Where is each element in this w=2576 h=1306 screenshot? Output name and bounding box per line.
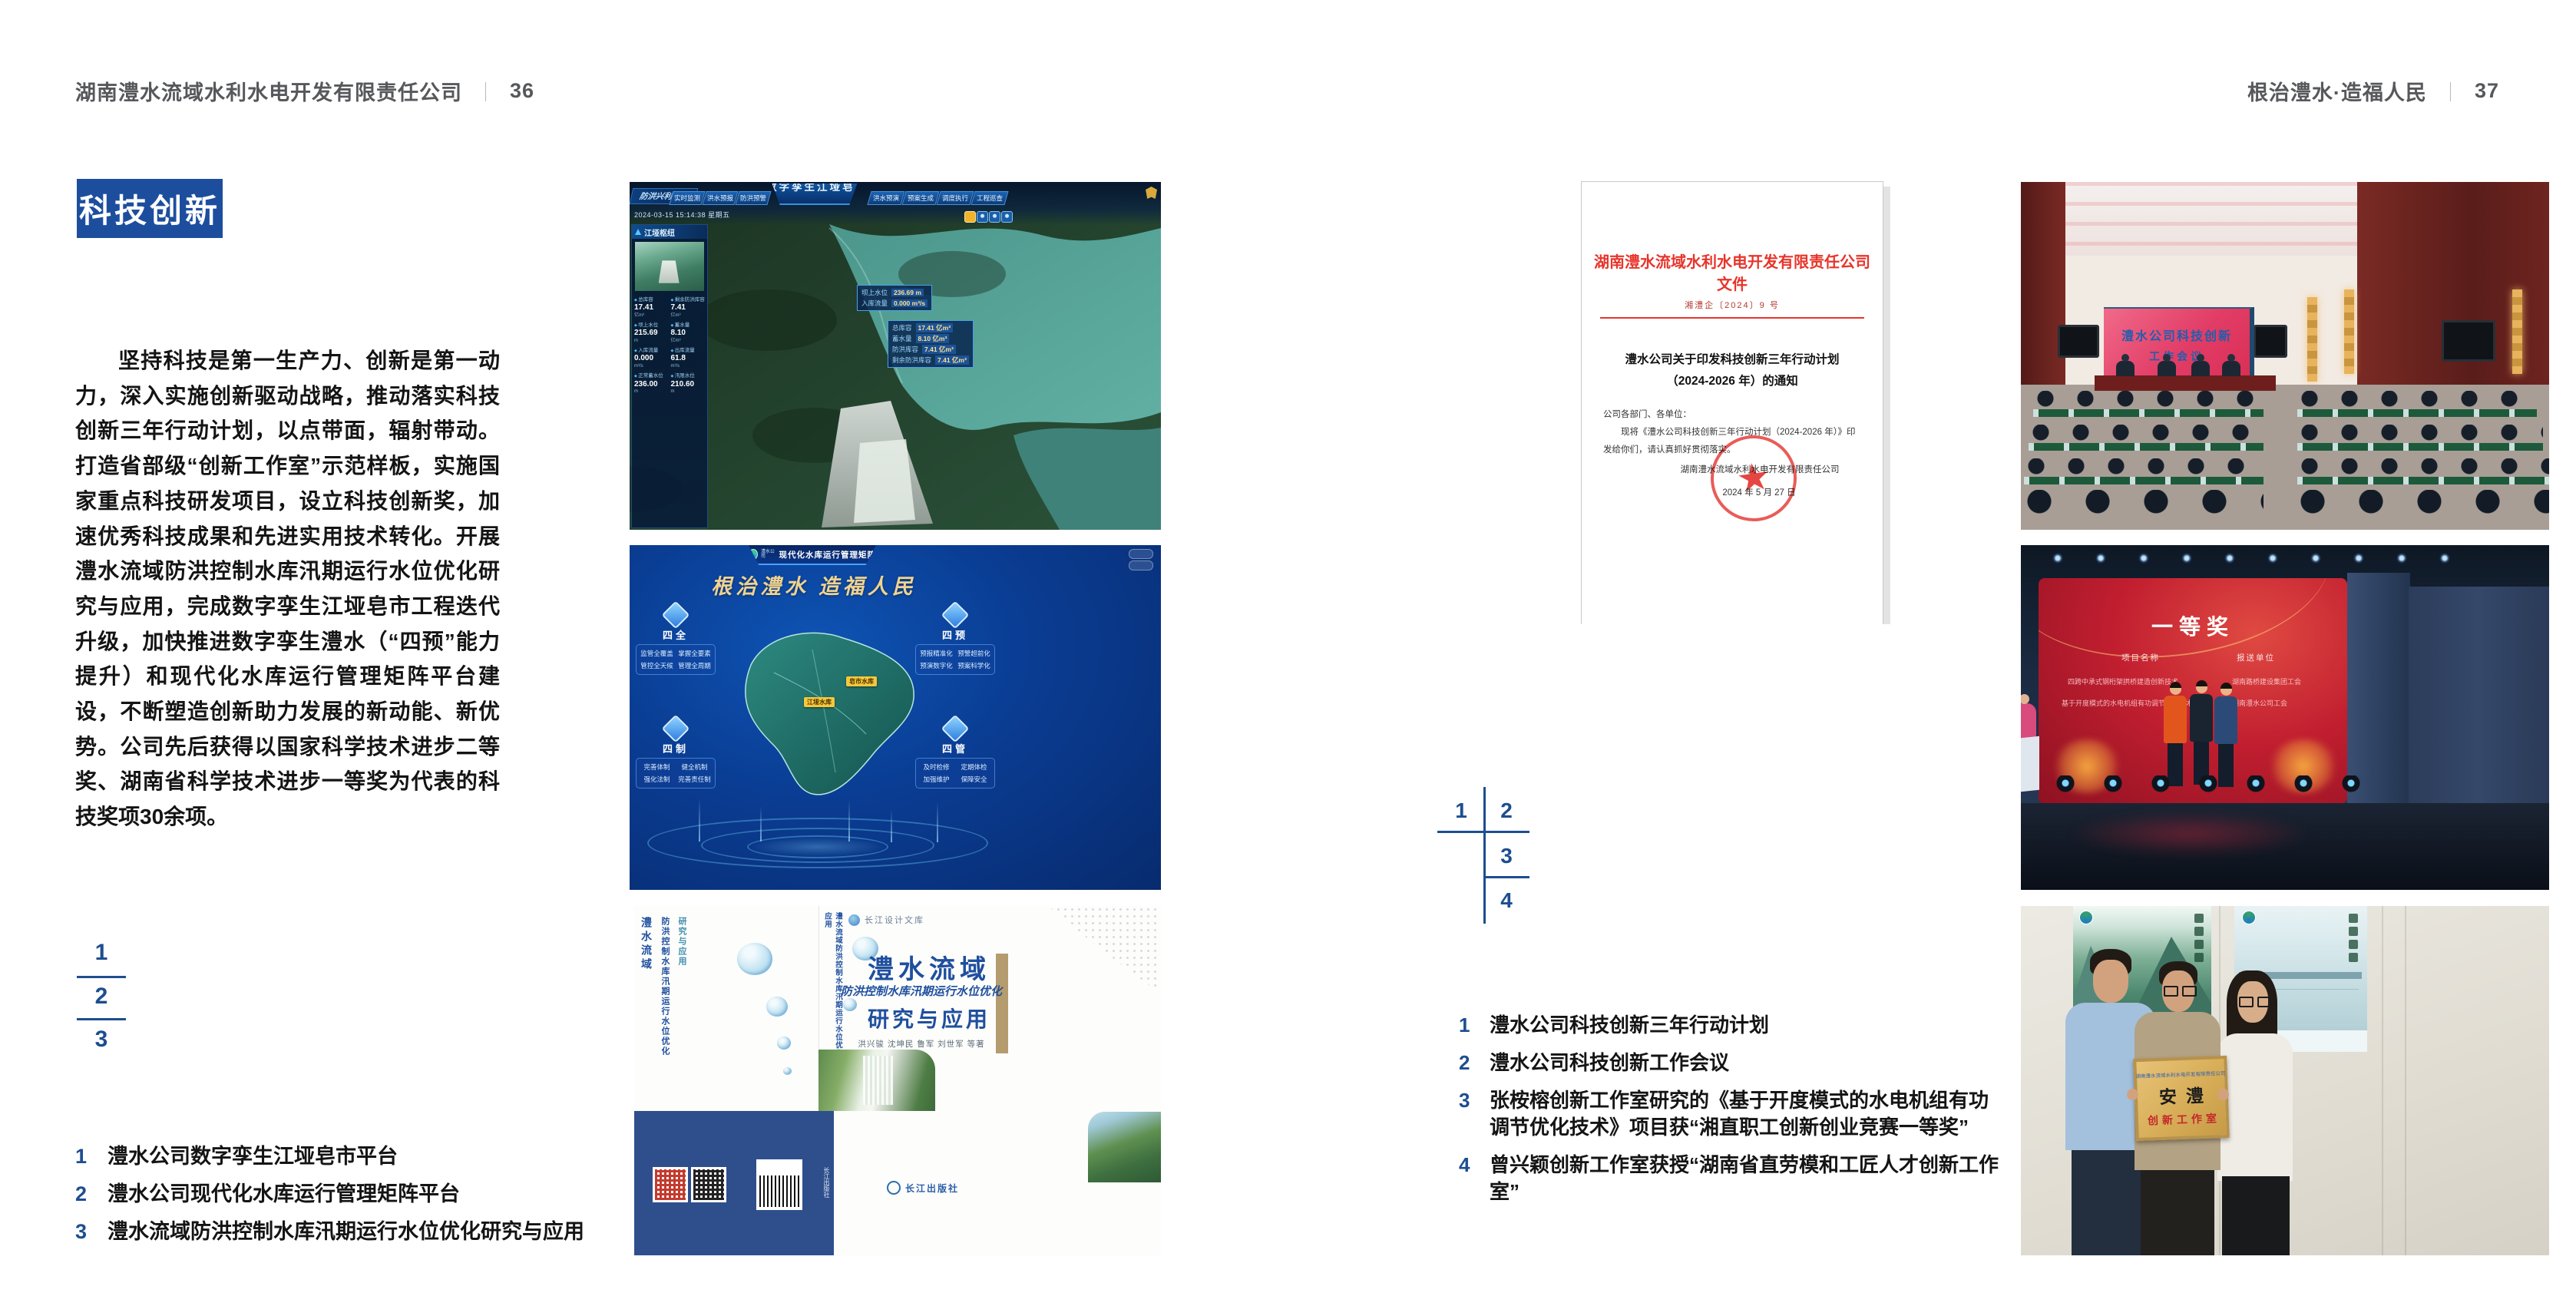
right-figure-index-3: 3 [1494, 844, 1519, 868]
panelist-silhouette [2116, 361, 2135, 376]
stat-cell: 汛限水位210.60m [671, 373, 706, 395]
plaque-org-line: 湖南澧水流域水利水电开发有限责任公司 [2135, 1068, 2225, 1079]
figure-award-stage-photo: 一等奖 项目名称 报送单位 四跨中承式钢桁架拱桥建造创新技术 湖南路桥建设集团工… [2021, 545, 2549, 890]
tab-flood-warning: 防洪预警 [735, 191, 771, 205]
caption-text: 澧水公司数字孪生江垭皂市平台 [107, 1143, 597, 1170]
face [2093, 960, 2128, 1003]
presenter-suit [2188, 682, 2214, 785]
pants [2141, 1170, 2214, 1255]
caption-number: 1 [1459, 1012, 1474, 1039]
water-drop [737, 943, 772, 975]
side-screen [2442, 320, 2495, 362]
glasses-icon [2164, 986, 2197, 997]
stage-spotlights [2052, 551, 2466, 565]
audience-row [2297, 425, 2543, 451]
caption-number: 3 [1459, 1087, 1474, 1141]
right-figure-captions: 1 澧水公司科技创新三年行动计划 2 澧水公司科技创新工作会议 3 张桉榕创新工… [1459, 1012, 2002, 1205]
water-level-tooltip: 坝上水位236.69 m 入库流量0.000 m³/s [857, 285, 932, 311]
water-drop [777, 1037, 791, 1050]
slogan-text: 根治澧水·造福人民 [2247, 76, 2427, 106]
map-label-zaoshi: 皂市水库 [846, 676, 877, 686]
audience-row-foreground [2294, 490, 2549, 530]
group-icon [662, 601, 690, 630]
hand [2127, 1089, 2138, 1100]
dam-spillway-photo [818, 1050, 935, 1111]
panel-header-icon [635, 229, 641, 235]
audience-row [2297, 458, 2549, 484]
meeting-left-wall [2021, 182, 2065, 412]
figure-management-matrix: 澧水公司 现代化水库运行管理矩阵 根治澧水 造福人民 皂市水库 江垭水库 四全 … [630, 545, 1161, 890]
matrix-slogan: 根治澧水 造福人民 [676, 570, 952, 600]
alert-pill [1129, 560, 1153, 570]
left-figure-index-1: 1 [77, 941, 126, 964]
dashboard-left-panel: 江垭枢纽 总库容17.41亿m³ 剩余防洪库容7.41亿m³ 坝上水位215.6… [631, 224, 708, 528]
group-icon [941, 715, 970, 743]
stage-light-fixtures [2042, 775, 2380, 803]
page-number-right: 37 [2475, 79, 2499, 103]
tab-flood-forecast: 洪水预报 [702, 191, 738, 205]
map-tool-user-icon [964, 211, 976, 223]
group-icon [941, 601, 970, 630]
stat-cell: 出库流量61.8m³/s [671, 348, 706, 369]
barcode [756, 1159, 802, 1210]
host-podium [2021, 736, 2039, 792]
index-divider [77, 976, 126, 978]
figure-official-document: 湖南澧水流域水利水电开发有限责任公司文件 湘澧企〔2024〕9 号 澧水公司关于… [1576, 181, 1904, 624]
caption-number: 2 [1459, 1050, 1474, 1076]
panel-header: 江垭枢纽 [632, 225, 707, 239]
caption-number: 1 [75, 1143, 91, 1170]
document-title: 澧水公司关于印发科技创新三年行动计划 （2024-2026 年）的通知 [1597, 349, 1867, 392]
wall-seam [2405, 906, 2406, 1255]
tab-plan-generation: 预案生成 [901, 191, 939, 205]
water-drop [766, 997, 788, 1017]
light-pillar [760, 806, 762, 841]
wall-seam [2382, 906, 2383, 1255]
award-title: 一等奖 [2039, 610, 2347, 641]
plaque-label: 创新工作室 [2144, 1110, 2221, 1128]
tab-realtime-monitor: 实时监测 [669, 191, 705, 205]
figure-meeting-photo: 澧水公司科技创新 工作会议 [2021, 182, 2549, 530]
stat-cell: 正常蓄水位236.00m [634, 373, 669, 395]
dais-table [2095, 375, 2276, 391]
page-number-left: 36 [510, 79, 534, 103]
index-divider [1437, 831, 1529, 833]
lhpc-logo-icon [2242, 911, 2256, 924]
section-body-paragraph: 坚持科技是第一生产力、创新是第一动力，深入实施创新驱动战略，推动落实科技创新三年… [75, 343, 500, 835]
gold-lamp [2344, 289, 2354, 374]
panelist-silhouette [2222, 361, 2240, 376]
stat-cell: 坝上水位215.69m [634, 322, 669, 344]
group-icon [662, 715, 690, 743]
right-figure-index-4: 4 [1494, 888, 1519, 913]
header-separator: ｜ [2441, 78, 2461, 105]
map-tool-camera-icon [977, 211, 988, 223]
right-page-header: 根治澧水·造福人民 ｜ 37 [2247, 76, 2499, 106]
seal-star-icon: ★ [1736, 459, 1771, 497]
gold-lamp [2307, 297, 2317, 382]
weather-pill [1129, 549, 1153, 559]
map-tool-alert-icon [1001, 211, 1013, 223]
qr-code [653, 1167, 688, 1202]
left-figure-index-3: 3 [77, 1028, 126, 1051]
innovation-studio-plaque: 湖南澧水流域水利水电开发有限责任公司 安澧 创新工作室 [2133, 1056, 2230, 1141]
gold-lamp [2512, 289, 2522, 374]
radar-ring [747, 835, 888, 858]
caption-row: 2 澧水公司科技创新工作会议 [1459, 1050, 2002, 1076]
caption-row: 3 张桉榕创新工作室研究的《基于开度模式的水电机组有功调节优化技术》项目获“湘直… [1459, 1087, 2002, 1141]
reservoir-stats: 总库容17.41亿m³ 剩余防洪库容7.41亿m³ 坝上水位215.69m 蓄水… [632, 294, 707, 398]
caption-number: 2 [75, 1181, 91, 1208]
stat-cell: 入库流量0.000m³/s [634, 348, 669, 369]
tab-flood-rehearsal: 洪水预演 [867, 191, 904, 205]
map-tool-locate-icon [989, 211, 1000, 223]
dashboard-title: 数字孪生江垭皂市 [766, 184, 863, 205]
award-org-1: 湖南路桥建设集团工会 [2232, 676, 2301, 686]
basin-map-illustration [720, 619, 920, 803]
column-header-project: 项目名称 [2121, 652, 2160, 663]
front-title-main: 澧水流域 [860, 948, 998, 986]
caption-row: 4 曾兴颖创新工作室获授“湖南省直劳模和工匠人才创新工作室” [1459, 1152, 2002, 1205]
panel-title: 江垭枢纽 [644, 226, 675, 238]
caption-text: 澧水公司科技创新工作会议 [1490, 1050, 2002, 1076]
reflective-stage-floor [2021, 803, 2549, 890]
matrix-group-siquan: 四全 监管全覆盖掌握全要素 管控全天候管理全周期 [639, 605, 713, 675]
caption-number: 3 [75, 1218, 91, 1245]
document-red-header: 湖南澧水流域水利水电开发有限责任公司文件 [1591, 250, 1873, 294]
glasses-icon [2239, 997, 2272, 1007]
document-page: 湖南澧水流域水利水电开发有限责任公司文件 湘澧企〔2024〕9 号 澧水公司关于… [1581, 181, 1883, 624]
light-pillar [848, 800, 850, 841]
hand [2217, 1089, 2229, 1100]
capacity-tooltip: 总库容17.41 亿m³ 蓄水量8.10 亿m³ 防洪库容7.41 亿m³ 剩余… [888, 320, 974, 368]
caption-row: 1 澧水公司数字孪生江垭皂市平台 [75, 1143, 597, 1170]
company-logo-icon [749, 549, 758, 560]
qr-code [691, 1167, 726, 1202]
caption-text: 澧水流域防洪控制水库汛期运行水位优化研究与应用 [107, 1218, 597, 1245]
award-org-2: 湖南澧水公司工会 [2232, 698, 2287, 708]
figure-digital-twin-dashboard: 防洪兴利调度 数字孪生江垭皂市 实时监测 洪水预报 防洪预警 洪水预演 预案生成… [630, 182, 1161, 530]
matrix-company: 澧水公司 [761, 550, 776, 559]
side-screen [2058, 325, 2099, 358]
caption-text: 张桉榕创新工作室研究的《基于开度模式的水电机组有功调节优化技术》项目获“湘直职工… [1490, 1087, 2002, 1141]
caption-text: 澧水公司科技创新三年行动计划 [1490, 1012, 2002, 1039]
publisher-logo-icon [887, 1181, 901, 1195]
audience-row-foreground [2021, 490, 2264, 530]
lhpc-logo-icon [2079, 911, 2093, 924]
right-figure-index-1: 1 [1449, 798, 1473, 823]
matrix-title-bar: 澧水公司 现代化水库运行管理矩阵 [749, 545, 876, 565]
poster-calligraphy [2349, 914, 2359, 962]
light-pillar [937, 802, 938, 842]
awardee-orange [2162, 683, 2188, 786]
pants [2222, 1176, 2290, 1255]
tab-project-inspection: 工程巡查 [971, 191, 1008, 205]
audience-row [2024, 458, 2264, 484]
poster-calligraphy [2194, 914, 2205, 962]
matrix-group-sizhi: 四制 完善体制健全机制 强化法制完善责任制 [639, 719, 713, 789]
tab-dispatch-execution: 调度执行 [936, 191, 974, 205]
water-drop [783, 1067, 792, 1075]
figure-plaque-photo: 湖南澧水流域水利水电开发有限责任公司 安澧 创新工作室 [2021, 906, 2549, 1255]
publisher-logo: 长江出版社 [887, 1181, 959, 1195]
matrix-title: 现代化水库运行管理矩阵 [779, 549, 877, 560]
front-title-tail: 研究与应用 [868, 1003, 990, 1033]
back-cover-title: 澧水流域 防洪控制水库汛期运行水位优化 研究与应用 [639, 917, 688, 1116]
left-figure-index-2: 2 [77, 985, 126, 1008]
authors-line: 洪兴骏 沈坤民 鲁军 刘世军 等著 [835, 1038, 1008, 1050]
company-name: 湖南澧水流域水利水电开发有限责任公司 [75, 76, 462, 106]
map-label-jiangya: 江垭水库 [804, 697, 835, 707]
spine-publisher: 长江出版社 [822, 1167, 831, 1228]
figure-book-cover: 澧水流域 防洪控制水库汛期运行水位优化 研究与应用 澧水流域防洪控制水库汛期运行… [630, 906, 1161, 1255]
plaque-name: 安澧 [2149, 1080, 2213, 1109]
awardee-blue [2213, 684, 2239, 787]
stat-cell: 蓄水量8.10亿m³ [671, 322, 706, 344]
header-separator: ｜ [476, 78, 496, 105]
matrix-group-siyu: 四预 预报精准化预警超前化 预演数字化预案科学化 [918, 605, 992, 675]
matrix-group-siguan: 四管 及时检修定期体检 加强维护保障安全 [918, 719, 992, 789]
index-divider [77, 1018, 126, 1020]
index-divider-vertical [1483, 787, 1486, 924]
light-pillar [891, 810, 892, 842]
caption-row: 2 澧水公司现代化水库运行管理矩阵平台 [75, 1181, 597, 1208]
document-red-rule [1600, 317, 1864, 319]
caption-row: 3 澧水流域防洪控制水库汛期运行水位优化研究与应用 [75, 1218, 597, 1245]
stat-cell: 总库容17.41亿m³ [634, 297, 669, 319]
dashboard-datetime: 2024-03-15 15:14:38 星期五 [634, 210, 730, 220]
light-pillar [699, 798, 700, 841]
panelist-silhouette [2191, 361, 2210, 376]
stat-cell: 剩余防洪库容7.41亿m³ [671, 297, 706, 319]
water-drop [843, 998, 857, 1011]
audience-row [2033, 391, 2264, 417]
left-page-header: 湖南澧水流域水利水电开发有限责任公司 ｜ 36 [75, 76, 534, 106]
column-header-org: 报送单位 [2237, 652, 2275, 663]
caption-number: 4 [1459, 1152, 1474, 1205]
screen-line1: 澧水公司科技创新 [2121, 326, 2232, 344]
caption-text: 曾兴颖创新工作室获授“湖南省直劳模和工匠人才创新工作室” [1490, 1152, 2002, 1205]
document-number: 湘澧企〔2024〕9 号 [1582, 299, 1883, 311]
dam-small-photo [1088, 1112, 1161, 1182]
caption-text: 澧水公司现代化水库运行管理矩阵平台 [107, 1181, 597, 1208]
audience-row [2297, 391, 2537, 417]
dam-thumbnail-photo [635, 242, 704, 291]
front-title-sub: 防洪控制水库汛期运行水位优化 [835, 983, 1008, 999]
white-tshirt [2217, 1033, 2293, 1181]
section-title: 科技创新 [77, 179, 223, 238]
panelist-silhouette [2158, 361, 2176, 376]
series-logo: 长江设计文库 [848, 914, 924, 926]
audience-row [2029, 425, 2264, 451]
side-screen [2254, 325, 2287, 358]
right-figure-index-2: 2 [1494, 798, 1519, 823]
left-figure-captions: 1 澧水公司数字孪生江垭皂市平台 2 澧水公司现代化水库运行管理矩阵平台 3 澧… [75, 1143, 597, 1245]
caption-row: 1 澧水公司科技创新三年行动计划 [1459, 1012, 2002, 1039]
index-divider [1483, 876, 1529, 878]
series-logo-icon [848, 914, 860, 926]
